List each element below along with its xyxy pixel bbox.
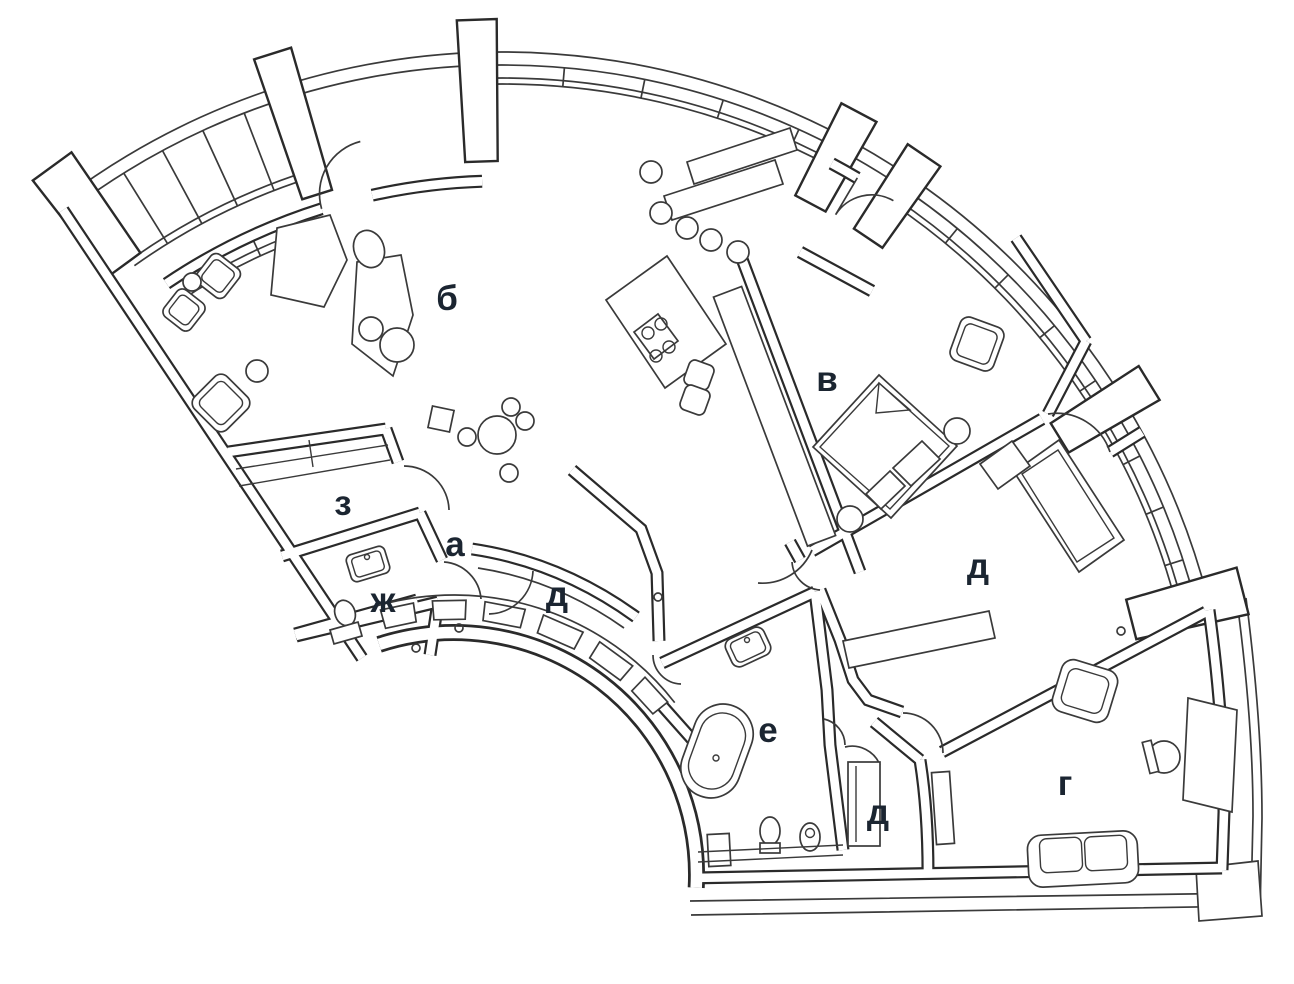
- chair: [516, 412, 534, 430]
- room-label-d1: д: [546, 575, 568, 614]
- dining-chair: [640, 161, 662, 183]
- junction-marker: [412, 644, 420, 652]
- room-label-e: е: [758, 711, 777, 750]
- round-table: [478, 416, 516, 454]
- stool: [837, 506, 863, 532]
- floor-plan-drawing: б в а з ж д д е д г: [0, 0, 1294, 984]
- dresser: [843, 611, 995, 668]
- chair: [500, 464, 518, 482]
- room-label-v: в: [816, 360, 838, 399]
- freeform-furniture: [271, 215, 347, 307]
- pier: [33, 152, 141, 276]
- dining-chair: [676, 217, 698, 239]
- door-arc-d2-west: [792, 562, 820, 590]
- pier: [854, 144, 941, 248]
- chair: [502, 398, 520, 416]
- room-label-z: з: [334, 484, 351, 523]
- side-table: [183, 273, 201, 291]
- glazing-d-mullions: [1123, 456, 1183, 566]
- chair: [458, 428, 476, 446]
- dining-chair: [727, 241, 749, 263]
- dining-chair: [650, 202, 672, 224]
- wardrobe: [1014, 440, 1124, 572]
- desk: [1183, 698, 1237, 812]
- coffee-table: [428, 406, 454, 432]
- pouf: [246, 360, 268, 382]
- armchair: [948, 315, 1007, 374]
- bottom-outer-lines: [690, 893, 1258, 915]
- junction-marker: [1117, 627, 1125, 635]
- kitchen-counter: [714, 287, 836, 547]
- room-label-zh: ж: [370, 581, 397, 620]
- pier: [457, 19, 498, 162]
- room-label-a: а: [445, 525, 465, 564]
- pouf: [359, 317, 383, 341]
- pouf: [380, 328, 414, 362]
- dining-chair: [700, 229, 722, 251]
- room-label-b: б: [436, 279, 458, 318]
- armchair: [188, 370, 253, 435]
- room-label-g: г: [1058, 764, 1073, 803]
- stool: [944, 418, 970, 444]
- floor-plan: б в а з ж д д е д г: [0, 0, 1294, 984]
- gallery-panel: [432, 600, 466, 620]
- glazing-d: [1096, 413, 1183, 608]
- door-arc-z: [404, 466, 449, 510]
- furniture: [160, 128, 1237, 888]
- door-arc-zh: [444, 562, 481, 599]
- console: [932, 771, 955, 844]
- room-label-d2: д: [967, 547, 989, 586]
- room-label-d3: д: [867, 793, 889, 832]
- toilet: [760, 817, 780, 845]
- armchair: [160, 286, 208, 334]
